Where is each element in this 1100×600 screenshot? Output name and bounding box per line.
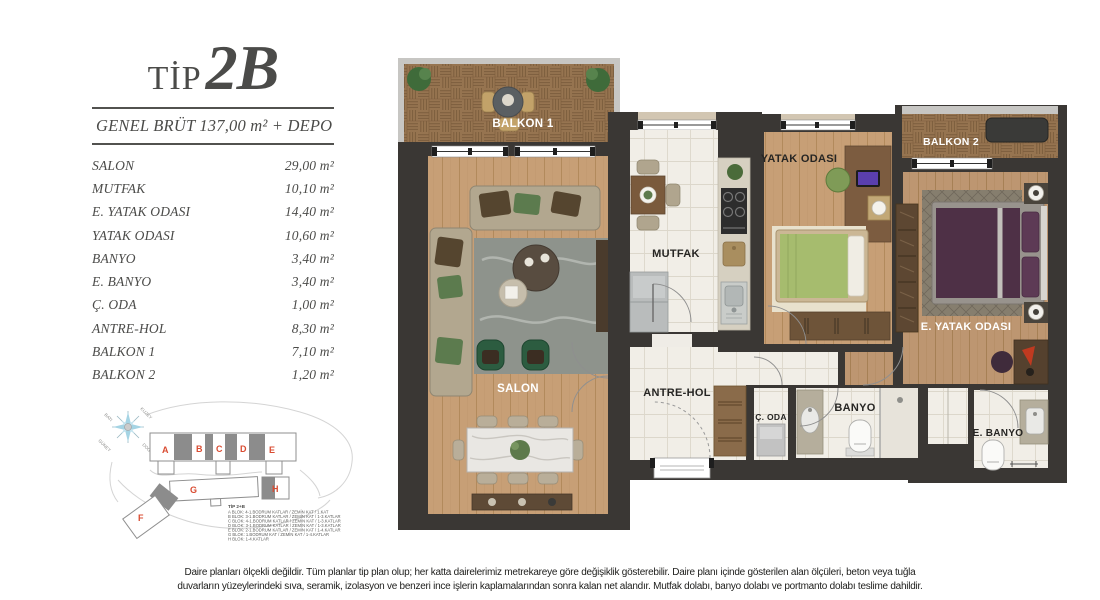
site-legend-line: H BLOK: 1-4.KATLAR: [228, 537, 269, 542]
block-letter-a: A: [162, 445, 169, 455]
site-building-g: [170, 477, 259, 509]
disclaimer-line-1: Daire planları ölçekli değildir. Tüm pla…: [0, 566, 1100, 580]
site-plan: BATI KUZEY GÜNEY DOĞU A B C D E: [0, 0, 1100, 600]
disclaimer: Daire planları ölçekli değildir. Tüm pla…: [0, 566, 1100, 593]
block-letter-d: D: [240, 444, 247, 454]
site-buildings-row: A B C D E: [150, 433, 296, 474]
site-building-h: H: [262, 477, 289, 499]
compass-south: GÜNEY: [97, 438, 112, 453]
site-legend: TİP 2+B A BLOK: 4-1.BODRUM KATLAR / ZEMİ…: [228, 503, 341, 542]
block-letter-f: F: [138, 513, 144, 523]
block-letter-b: B: [196, 444, 203, 454]
block-letter-e: E: [269, 445, 275, 455]
block-letter-g: G: [190, 485, 197, 495]
compass-north: KUZEY: [139, 406, 153, 420]
compass-west: BATI: [103, 412, 113, 422]
site-legend-title: TİP 2+B: [228, 503, 246, 509]
compass: BATI KUZEY GÜNEY DOĞU: [97, 406, 154, 455]
disclaimer-line-2: duvarların yüzeylerindeki sıva, seramik,…: [0, 580, 1100, 594]
brochure-page: TİP 2B GENEL BRÜT 137,00 m² + DEPO SALON…: [0, 0, 1100, 600]
block-letter-h: H: [272, 484, 279, 494]
block-letter-c: C: [216, 444, 223, 454]
